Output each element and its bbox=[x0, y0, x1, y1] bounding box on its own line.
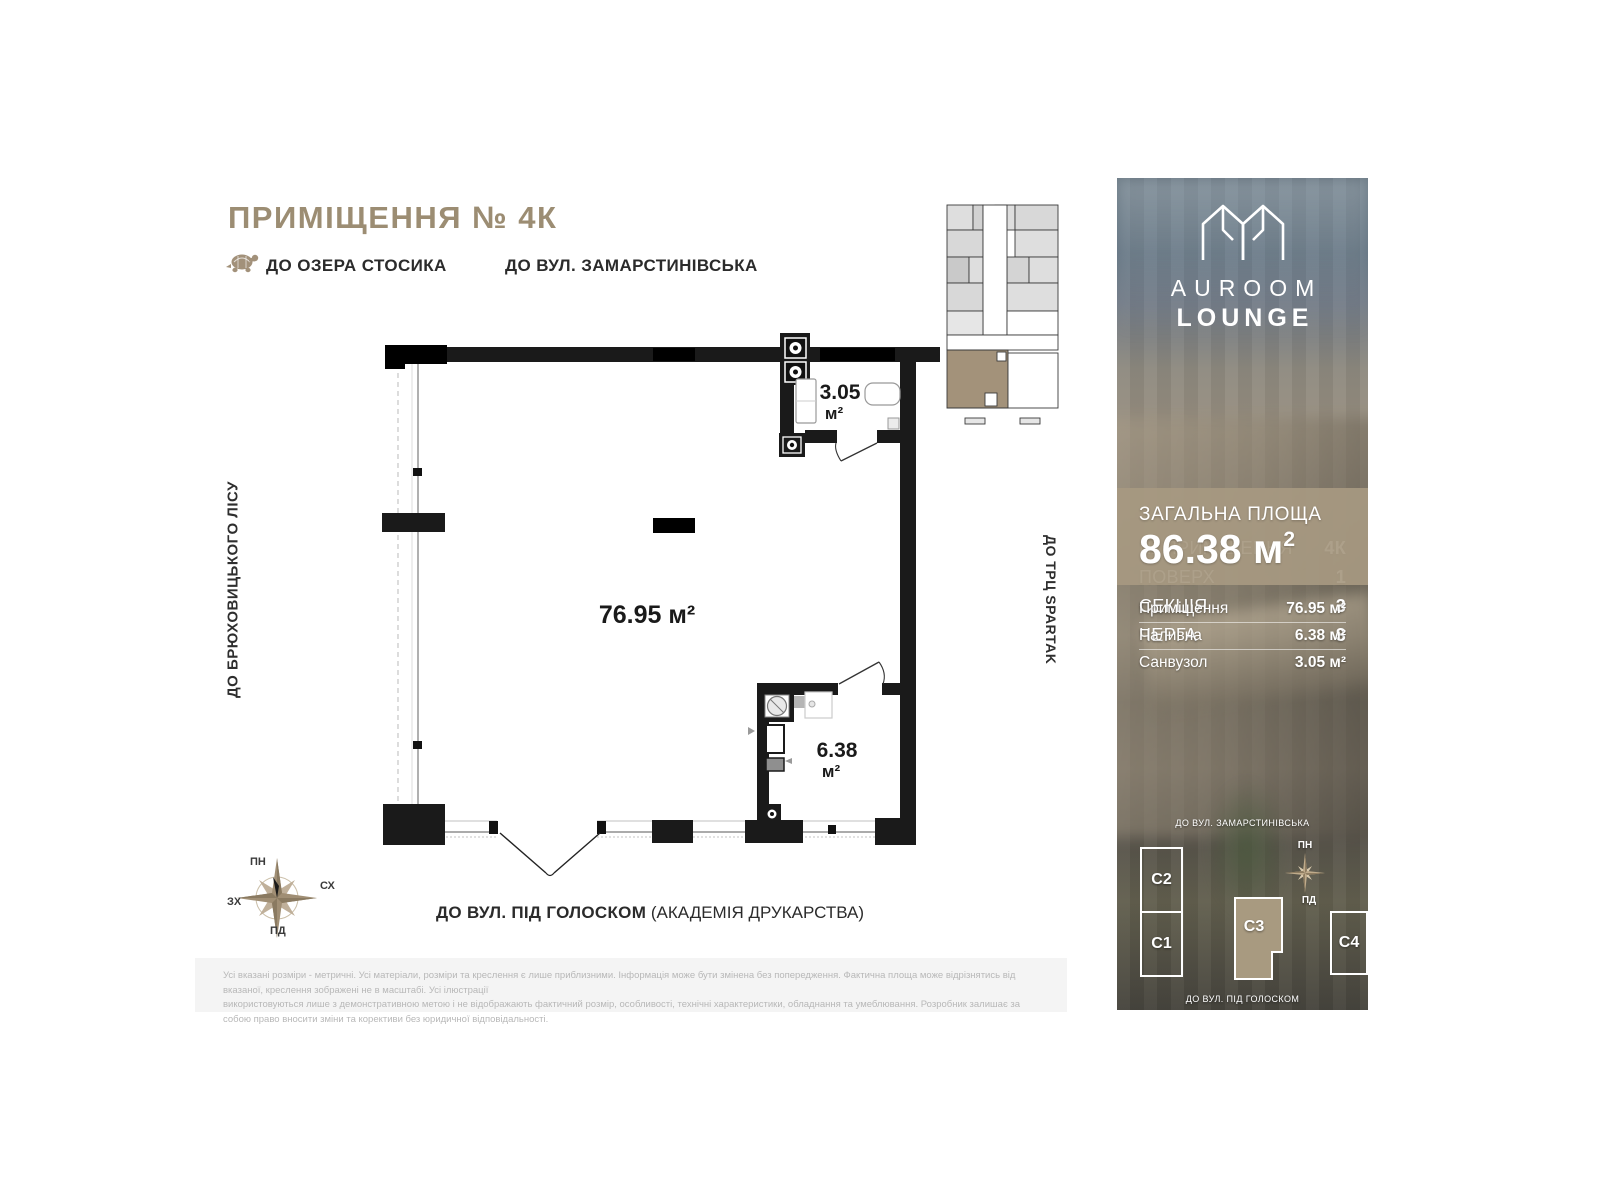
direction-mall-label: ДО ТРЦ SPARTAK bbox=[1040, 520, 1062, 680]
auroom-logo-mark bbox=[1191, 200, 1295, 264]
total-area-panel: ЗАГАЛЬНА ПЛОЩА 86.38 м2 bbox=[1117, 488, 1368, 585]
building-c1: C1 bbox=[1140, 911, 1183, 977]
building-label: C3 bbox=[1234, 897, 1274, 957]
room-row-main: Приміщення 76.95 м² bbox=[1139, 596, 1346, 623]
compass-east-label: СХ bbox=[320, 880, 335, 892]
building-c2: C2 bbox=[1140, 847, 1183, 913]
site-map: ДО ВУЛ. ЗАМАРСТИНІВСЬКА C2 C1 C3 C4 ПН bbox=[1117, 818, 1368, 1010]
street-bottom-bold: ДО ВУЛ. ПІД ГОЛОСКОМ bbox=[436, 903, 646, 922]
sidebar: AUROOM LOUNGE № ПРИМІЩЕННЯ 4К ПОВЕРХ 1 С… bbox=[1117, 178, 1368, 1010]
turtle-icon bbox=[225, 250, 261, 276]
floor-plan: 76.95 м² 3.05 м² 6.38 м² bbox=[360, 315, 940, 880]
boiler-area-value: 6.38 bbox=[817, 739, 858, 762]
boiler-area-unit: м² bbox=[822, 762, 841, 781]
building-label: C4 bbox=[1339, 934, 1359, 952]
room-value: 3.05 м² bbox=[1295, 654, 1346, 672]
compass-north-label: ПН bbox=[250, 856, 266, 868]
bathroom-area-value: 3.05 bbox=[820, 381, 861, 404]
disclaimer-line2: використовуються лише з демонстративною … bbox=[223, 998, 1049, 1027]
room-value: 6.38 м² bbox=[1295, 627, 1346, 645]
compass-west-label: ЗХ bbox=[227, 896, 241, 908]
brand-subname: LOUNGE bbox=[1117, 304, 1368, 333]
brand-logo: AUROOM LOUNGE bbox=[1117, 200, 1368, 333]
direction-street-bottom: ДО ВУЛ. ПІД ГОЛОСКОМ (АКАДЕМІЯ ДРУКАРСТВ… bbox=[360, 903, 940, 923]
room-label: Приміщення bbox=[1139, 600, 1228, 618]
room-value: 76.95 м² bbox=[1286, 600, 1346, 618]
map-compass-south: ПД bbox=[1287, 895, 1331, 906]
building-label: C1 bbox=[1151, 935, 1171, 953]
room-label: Санвузол bbox=[1139, 654, 1207, 672]
room-label: Паливна bbox=[1139, 627, 1202, 645]
flyer-canvas: ПРИМІЩЕННЯ № 4К ДО ОЗЕРА СТОСИКА ДО ВУЛ.… bbox=[0, 0, 1600, 1200]
disclaimer: Усі вказані розміри - метричні. Усі мате… bbox=[195, 958, 1067, 1012]
direction-forest-label: ДО БРЮХОВИЦЬКОГО ЛІСУ bbox=[222, 475, 244, 705]
map-compass-north: ПН bbox=[1283, 840, 1327, 851]
compass-south-label: ПД bbox=[270, 925, 286, 937]
total-area-number: 86.38 bbox=[1139, 526, 1242, 572]
bathroom-area-unit: м² bbox=[825, 404, 844, 423]
room-areas: Приміщення 76.95 м² Паливна 6.38 м² Санв… bbox=[1117, 596, 1368, 676]
site-map-street-bottom: ДО ВУЛ. ПІД ГОЛОСКОМ bbox=[1117, 994, 1368, 1004]
building-label: C2 bbox=[1151, 871, 1171, 889]
room-row-boiler: Паливна 6.38 м² bbox=[1139, 623, 1346, 650]
total-area-value: 86.38 м2 bbox=[1139, 528, 1346, 571]
total-area-unit-sup: 2 bbox=[1283, 528, 1295, 551]
street-bottom-note: (АКАДЕМІЯ ДРУКАРСТВА) bbox=[646, 903, 864, 922]
page-title: ПРИМІЩЕННЯ № 4К bbox=[228, 200, 557, 236]
direction-lake-label: ДО ОЗЕРА СТОСИКА bbox=[266, 256, 447, 276]
main-area-label: 76.95 м² bbox=[599, 601, 695, 629]
overview-mini-plan bbox=[925, 193, 1067, 431]
total-area-label: ЗАГАЛЬНА ПЛОЩА bbox=[1139, 504, 1346, 526]
total-area-unit: м bbox=[1242, 526, 1284, 572]
room-row-bathroom: Санвузол 3.05 м² bbox=[1139, 650, 1346, 676]
site-map-street-top: ДО ВУЛ. ЗАМАРСТИНІВСЬКА bbox=[1117, 818, 1368, 828]
map-compass-rose bbox=[1283, 851, 1327, 895]
brand-name: AUROOM bbox=[1117, 275, 1368, 302]
disclaimer-line1: Усі вказані розміри - метричні. Усі мате… bbox=[223, 969, 1049, 998]
direction-street-top-label: ДО ВУЛ. ЗАМАРСТИНІВСЬКА bbox=[505, 256, 758, 276]
building-c4: C4 bbox=[1330, 911, 1368, 975]
